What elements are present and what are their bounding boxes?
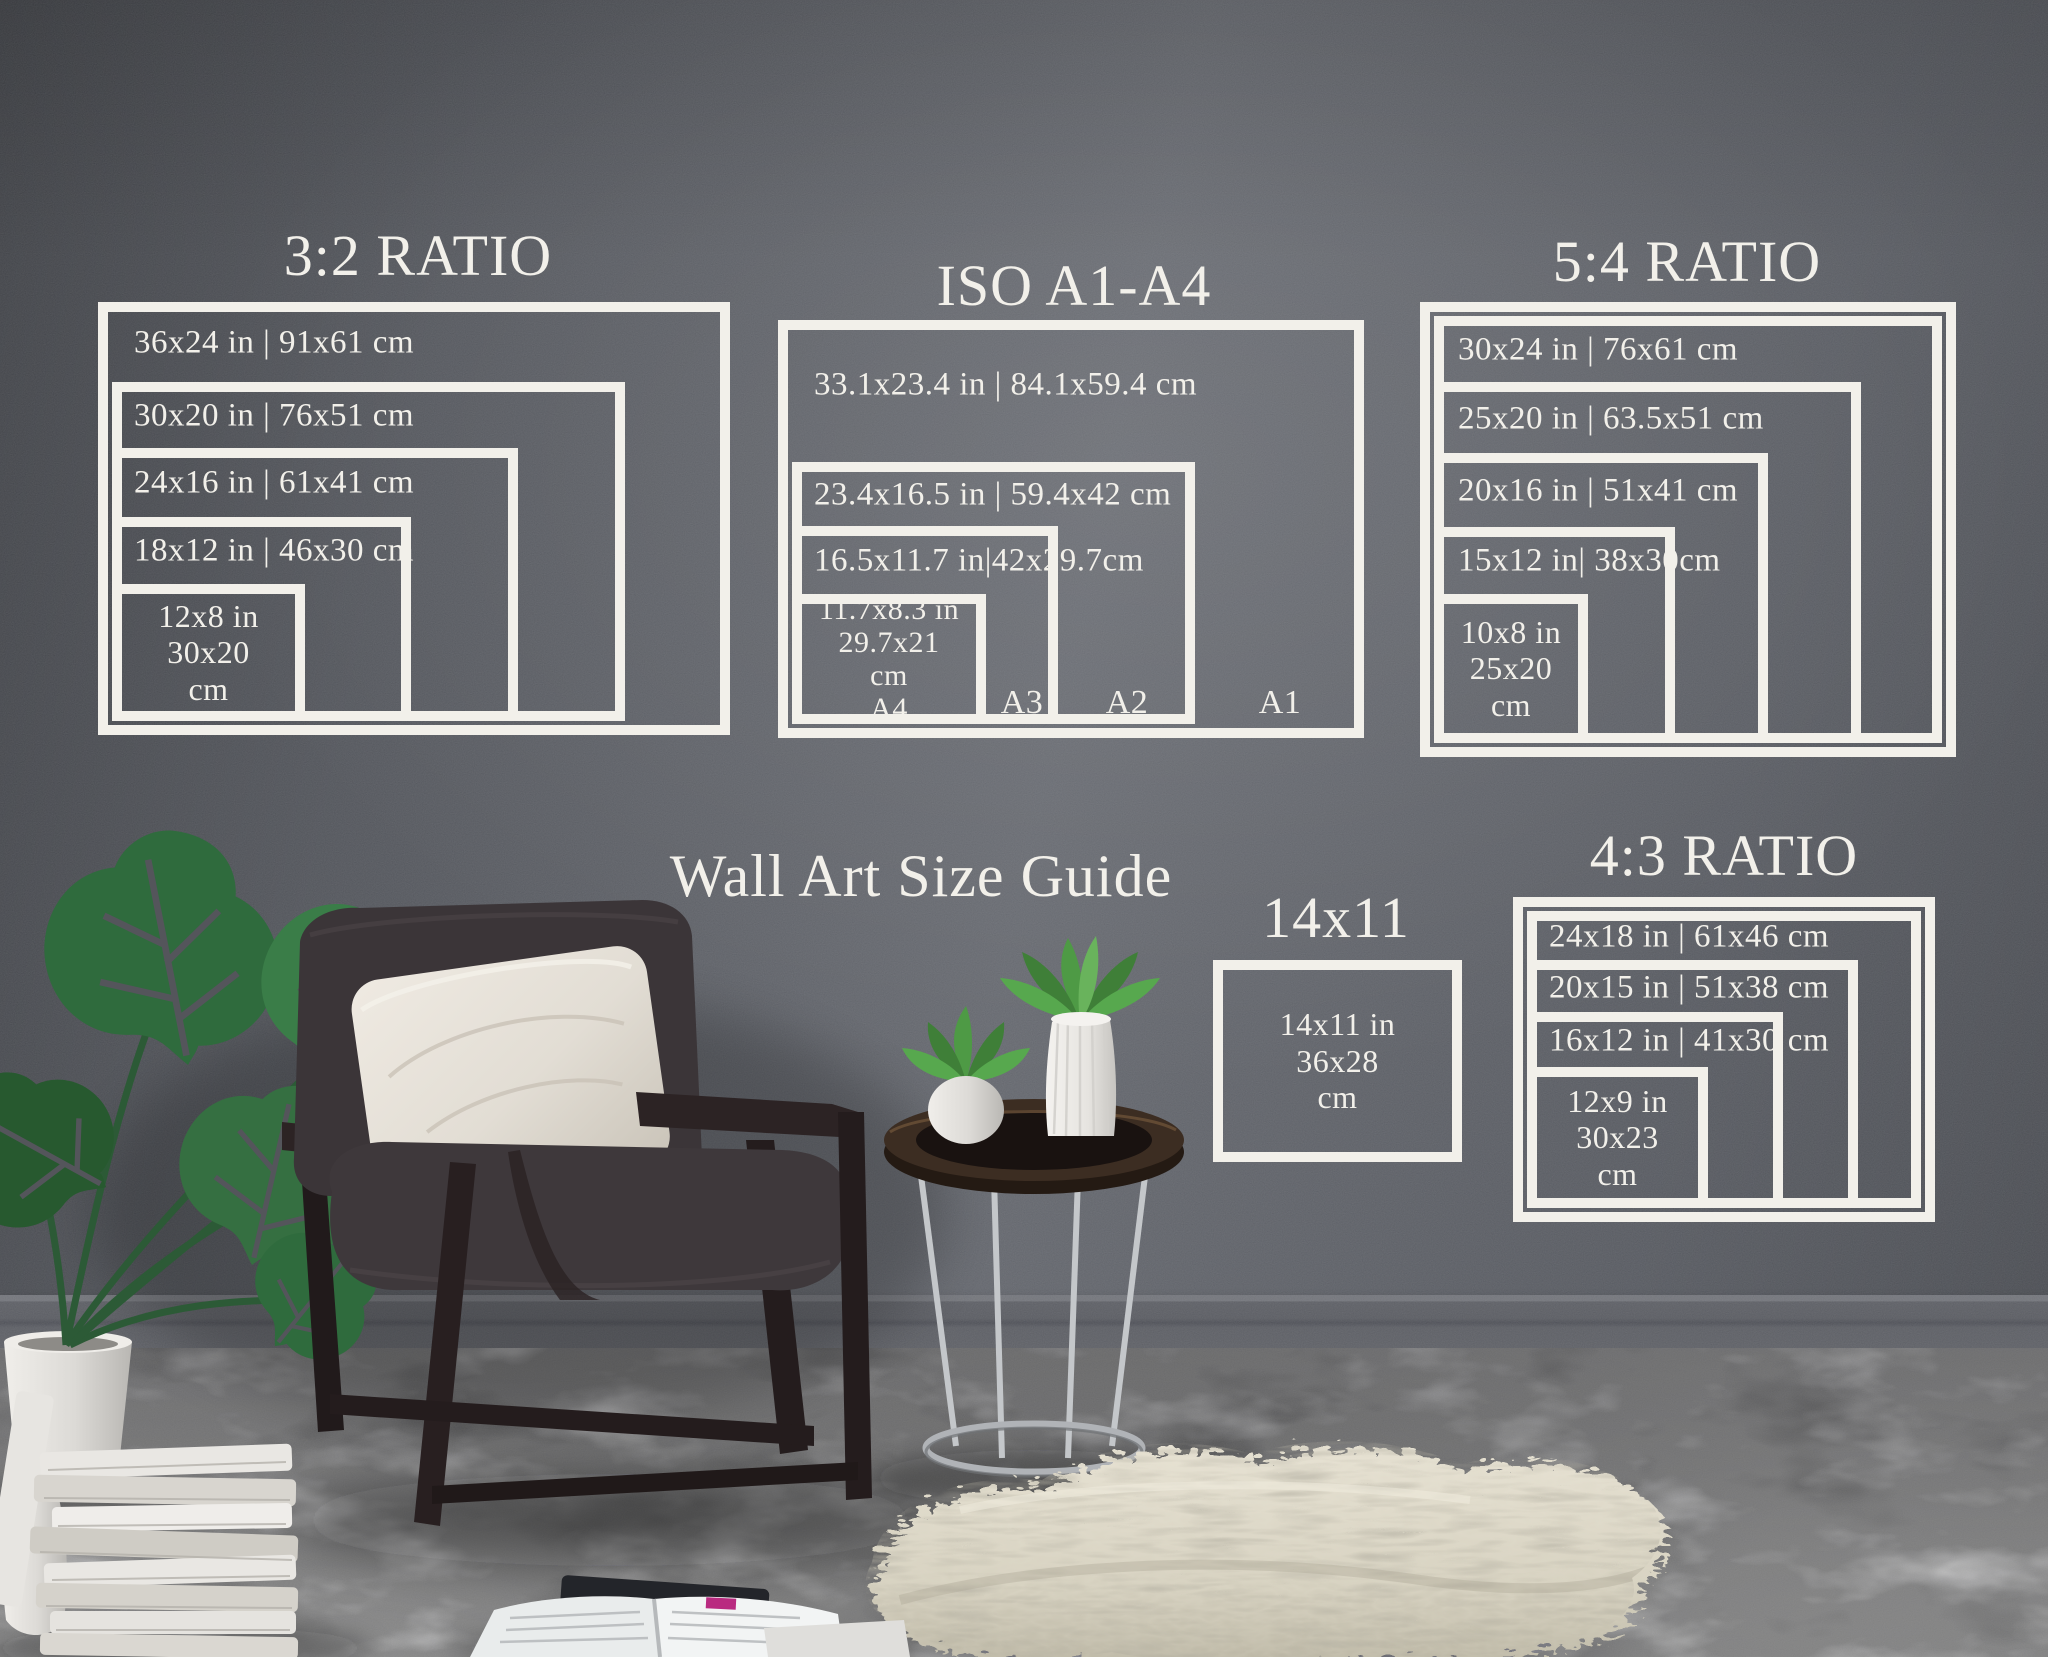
stacked-books bbox=[30, 1444, 299, 1657]
chair-seat-cushion bbox=[329, 1142, 850, 1290]
open-book bbox=[470, 1575, 910, 1657]
succulent-leaves bbox=[902, 1006, 1030, 1082]
table-chrome-legs bbox=[920, 1168, 1146, 1458]
magenta-bookmark bbox=[706, 1597, 737, 1610]
vase-rim bbox=[1051, 1012, 1111, 1026]
scene: Wall Art Size Guide 3:2 RATIO 36x24 in |… bbox=[0, 0, 2048, 1657]
vase-plant-leaves bbox=[1000, 936, 1160, 1022]
armchair bbox=[282, 900, 872, 1526]
furniture-layer bbox=[0, 0, 2048, 1657]
succulent-pot bbox=[928, 1076, 1004, 1144]
